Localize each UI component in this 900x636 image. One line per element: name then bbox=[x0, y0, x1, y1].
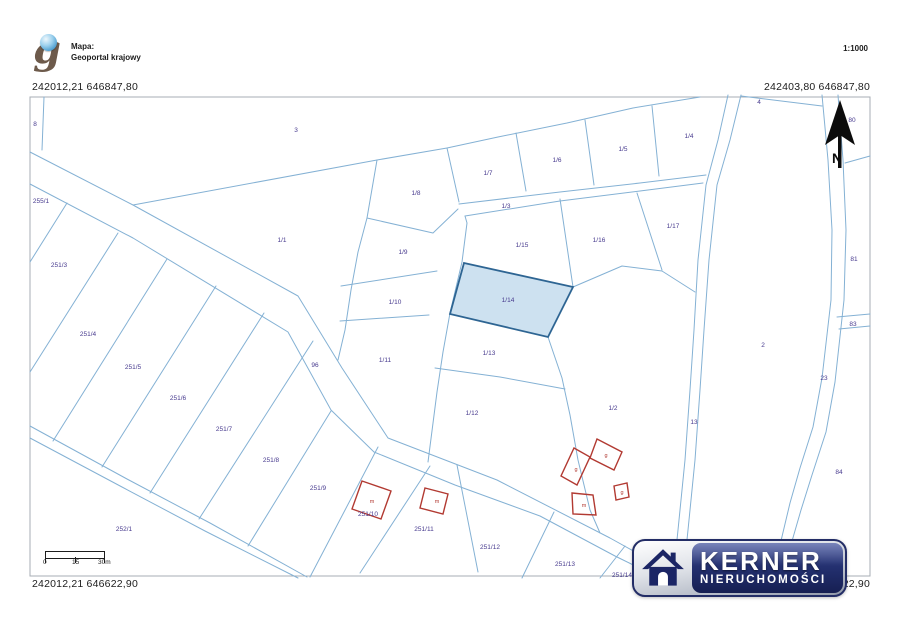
building-outlines bbox=[352, 439, 629, 519]
parcel-label: 2 bbox=[761, 342, 765, 349]
parcel-label: 1/3 bbox=[501, 203, 510, 210]
parcel-label: 1/14 bbox=[502, 297, 515, 304]
parcel-label: 1/8 bbox=[411, 190, 420, 197]
parcel-label: 1/4 bbox=[684, 133, 693, 140]
building-label: g bbox=[604, 453, 607, 459]
parcel-label: 1/16 bbox=[593, 237, 606, 244]
parcel-label: 1/2 bbox=[608, 405, 617, 412]
parcel-label: 1/5 bbox=[618, 146, 627, 153]
map-document: g Mapa: Geoportal krajowy 1:1000 242012,… bbox=[0, 0, 900, 636]
building-label: m bbox=[370, 499, 375, 505]
coordinate-top-right: 242403,80 646847,80 bbox=[764, 81, 870, 93]
parcel-label: 23 bbox=[820, 375, 828, 382]
kerner-subtitle-text: NIERUCHOMOŚCI bbox=[700, 574, 835, 588]
north-label: N bbox=[832, 150, 842, 166]
kerner-brand-text: KERNER bbox=[700, 548, 835, 574]
kerner-logo: KERNER NIERUCHOMOŚCI bbox=[632, 539, 847, 597]
parcel-label: 96 bbox=[311, 362, 319, 369]
parcel-label: 1/12 bbox=[466, 410, 479, 417]
parcel-label: 251/12 bbox=[480, 544, 500, 551]
building-label: m bbox=[435, 499, 440, 505]
parcel-label: 255/1 bbox=[33, 198, 50, 205]
parcel-label: 13 bbox=[690, 419, 698, 426]
parcel-label: 1/15 bbox=[516, 242, 529, 249]
parcel-label: 251/13 bbox=[555, 561, 575, 568]
scale-label-30m: 30m bbox=[98, 559, 111, 566]
parcel-label: 8 bbox=[33, 121, 37, 128]
building-label: g bbox=[620, 490, 623, 496]
parcel-label: 251/10 bbox=[358, 511, 378, 518]
parcel-label: 251/11 bbox=[414, 526, 434, 533]
scale-bar-labels: 0 15 30m bbox=[0, 559, 160, 569]
parcel-label: 4 bbox=[757, 99, 761, 106]
parcel-label: 251/6 bbox=[170, 395, 187, 402]
parcel-label: 1/1 bbox=[277, 237, 286, 244]
coordinate-top-left: 242012,21 646847,80 bbox=[32, 81, 138, 93]
parcel-label: 1/17 bbox=[667, 223, 680, 230]
kerner-logo-panel: KERNER NIERUCHOMOŚCI bbox=[692, 543, 843, 593]
building-label: g bbox=[574, 467, 577, 473]
parcel-label: 251/4 bbox=[80, 331, 97, 338]
parcel-label: 251/14 bbox=[612, 572, 632, 579]
scale-bar bbox=[45, 551, 105, 559]
parcel-label: 80 bbox=[848, 117, 856, 124]
parcel-label: 251/3 bbox=[51, 262, 68, 269]
parcel-label: 3 bbox=[294, 127, 298, 134]
house-icon bbox=[634, 541, 692, 595]
parcel-label: 83 bbox=[849, 321, 857, 328]
parcel-label: 1/10 bbox=[389, 299, 402, 306]
parcel-label: 251/9 bbox=[310, 485, 327, 492]
building-label: m bbox=[582, 503, 587, 509]
parcel-label: 81 bbox=[850, 256, 858, 263]
parcel-label: 1/7 bbox=[483, 170, 492, 177]
map-frame bbox=[30, 97, 870, 576]
north-arrow-icon: N bbox=[825, 100, 855, 168]
parcel-label: 1/13 bbox=[483, 350, 496, 357]
parcel-label: 1/11 bbox=[379, 357, 392, 364]
parcel-label: 251/8 bbox=[263, 457, 280, 464]
parcel-label: 1/9 bbox=[398, 249, 407, 256]
scale-label-15: 15 bbox=[72, 559, 79, 566]
parcel-boundaries bbox=[30, 95, 870, 578]
parcel-label: 84 bbox=[835, 469, 843, 476]
parcel-label: 1/6 bbox=[552, 157, 561, 164]
parcel-label: 251/5 bbox=[125, 364, 142, 371]
parcel-label: 251/7 bbox=[216, 426, 233, 433]
coordinate-bottom-left: 242012,21 646622,90 bbox=[32, 578, 138, 590]
parcel-label: 252/1 bbox=[116, 526, 133, 533]
scale-label-0: 0 bbox=[43, 559, 47, 566]
